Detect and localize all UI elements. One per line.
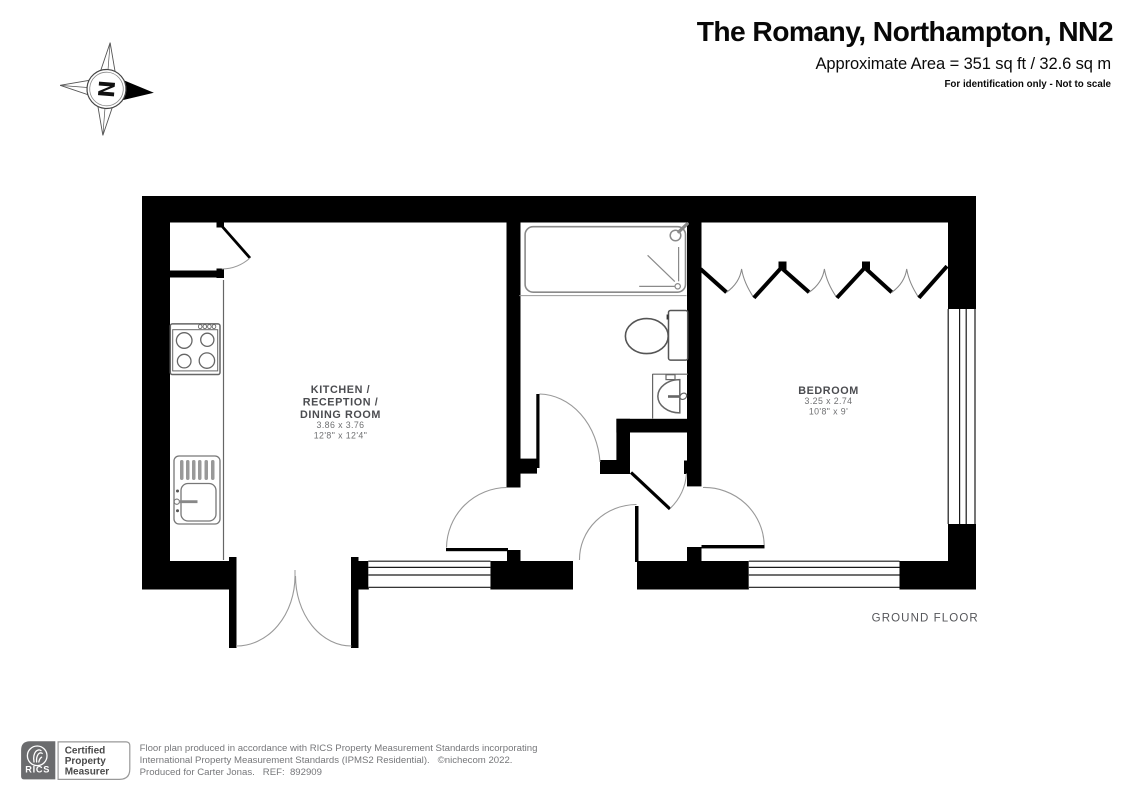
svg-text:For identification only - Not: For identification only - Not to scale — [944, 79, 1111, 90]
svg-text:International Property Measure: International Property Measurement Stand… — [140, 755, 513, 766]
svg-text:Certified: Certified — [65, 746, 106, 757]
svg-text:Approximate Area = 351 sq ft /: Approximate Area = 351 sq ft / 32.6 sq m — [816, 55, 1111, 73]
svg-text:RICS: RICS — [25, 765, 50, 775]
svg-text:BEDROOM: BEDROOM — [798, 385, 859, 397]
svg-text:The Romany, Northampton, NN2: The Romany, Northampton, NN2 — [697, 15, 1113, 47]
svg-text:GROUND FLOOR: GROUND FLOOR — [872, 613, 979, 625]
svg-text:Property: Property — [65, 756, 107, 767]
svg-text:KITCHEN /: KITCHEN / — [311, 384, 370, 396]
svg-text:3.25 x 2.74: 3.25 x 2.74 — [805, 396, 853, 406]
svg-text:Produced for Carter Jonas. R: Produced for Carter Jonas. REF: 892909 — [140, 767, 322, 778]
svg-text:10'8" x 9': 10'8" x 9' — [809, 407, 848, 417]
svg-text:3.86 x 3.76: 3.86 x 3.76 — [317, 420, 365, 430]
svg-text:Floor plan produced in accorda: Floor plan produced in accordance with R… — [140, 743, 538, 754]
svg-text:RECEPTION /: RECEPTION / — [303, 397, 379, 409]
svg-text:Measurer: Measurer — [65, 766, 110, 777]
svg-text:12'8" x 12'4": 12'8" x 12'4" — [314, 431, 367, 441]
